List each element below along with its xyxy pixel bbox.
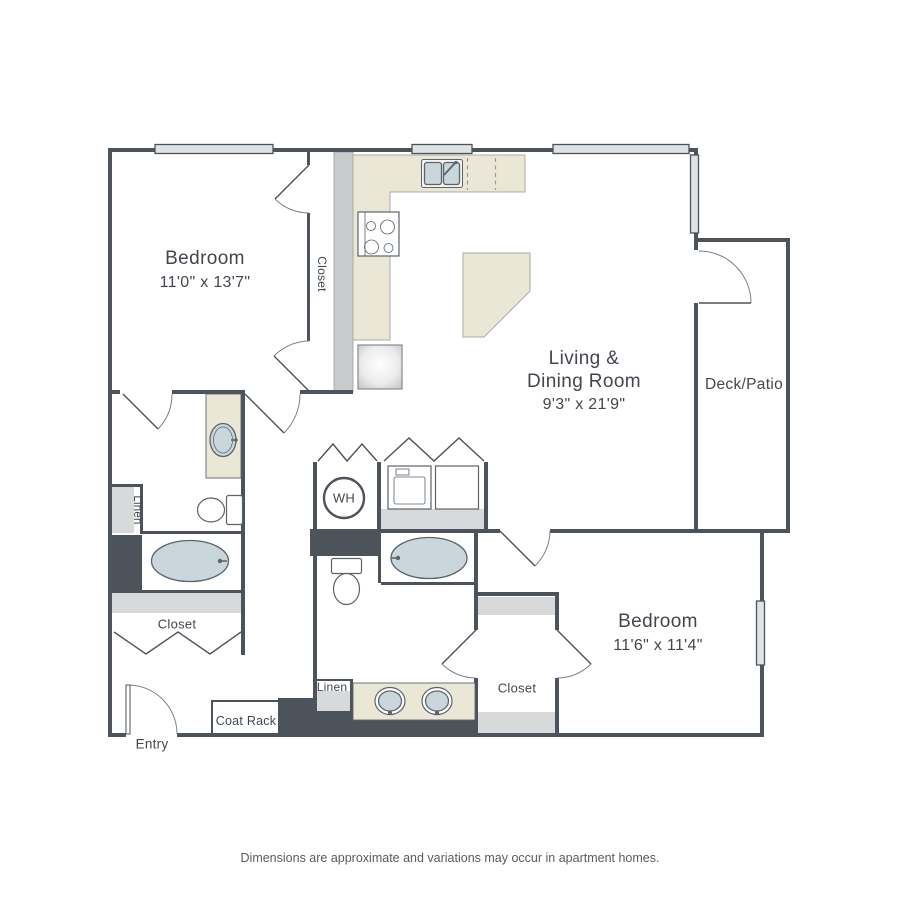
dryer [436,466,479,509]
bedroom2-closet-label: Closet [498,681,536,696]
living-room-dimensions: 9'3" x 21'9" [543,396,626,414]
windows [155,145,765,666]
bathtub-1 [152,541,229,582]
bath1-closet-label: Closet [158,617,196,632]
living-room-label-line1: Living & [549,348,620,370]
bath2-linen-label: Linen [317,680,348,694]
water-heater-label: WH [333,491,355,506]
entry-label: Entry [136,737,169,752]
bedroom2-label: Bedroom [618,611,698,633]
coat-rack-label: Coat Rack [216,714,277,728]
double-vanity [353,683,475,720]
floor-plan-drawing [0,0,900,900]
bedroom1-label: Bedroom [165,248,245,270]
bedroom1-dimensions: 11'0" x 13'7" [160,274,251,292]
toilet-1 [198,496,243,525]
vanity-sink-1 [206,394,241,478]
stove [358,212,399,256]
living-room-label-line2: Dining Room [527,371,641,393]
bathtub-2 [391,538,467,579]
bath1-linen-label: Linen [131,495,143,524]
closet-shelves [112,487,555,733]
kitchen-sink [422,160,463,188]
deck-patio-label: Deck/Patio [705,376,783,394]
kitchen-island [463,253,530,337]
bedroom1-closet-shelving [334,152,353,392]
disclaimer-text: Dimensions are approximate and variation… [0,851,900,865]
bedroom1-closet-label: Closet [315,256,329,291]
toilet-2 [332,559,362,605]
bedroom2-dimensions: 11'6" x 11'4" [613,637,703,655]
floor-plan: Bedroom 11'0" x 13'7" Closet Living & Di… [0,0,900,900]
washer [388,466,431,509]
refrigerator [358,345,402,389]
